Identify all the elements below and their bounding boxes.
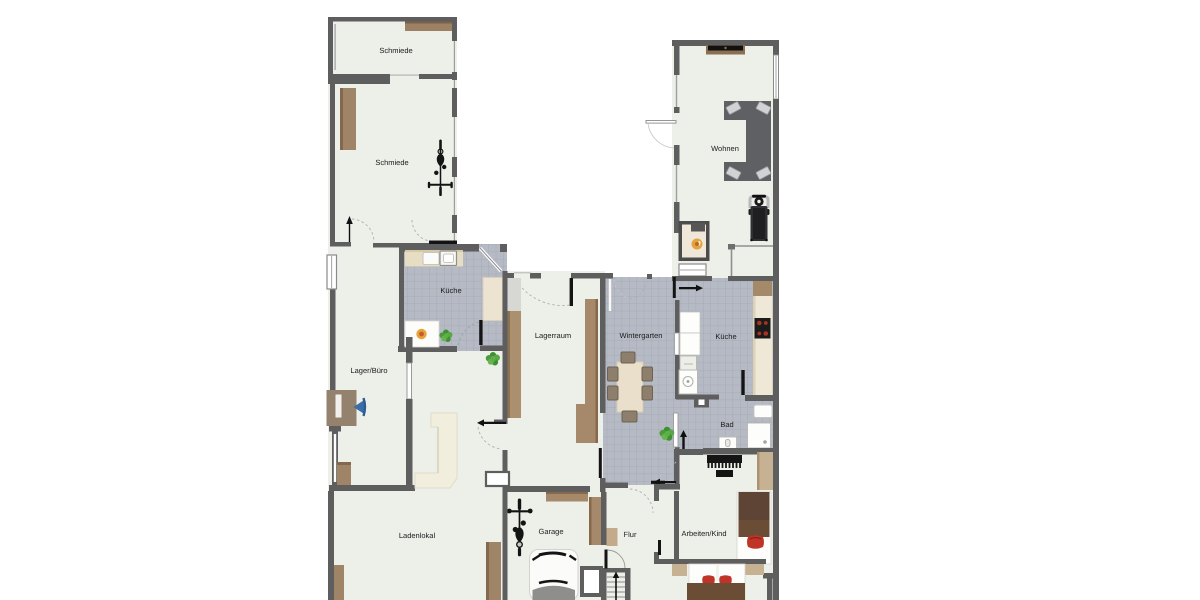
svg-text:Küche: Küche [440,286,461,295]
svg-text:Schmiede: Schmiede [375,158,408,167]
svg-text:Bad: Bad [720,420,733,429]
svg-text:Lagerraum: Lagerraum [535,331,571,340]
svg-text:Lager/Büro: Lager/Büro [350,366,387,375]
svg-text:Garage: Garage [538,527,563,536]
svg-text:Schmiede: Schmiede [379,46,412,55]
svg-text:Flur: Flur [624,530,637,539]
svg-text:Ladenlokal: Ladenlokal [399,531,436,540]
svg-text:Küche: Küche [715,332,736,341]
svg-text:Wohnen: Wohnen [711,144,739,153]
svg-text:Wintergarten: Wintergarten [620,331,663,340]
svg-text:Arbeiten/Kind: Arbeiten/Kind [681,529,726,538]
